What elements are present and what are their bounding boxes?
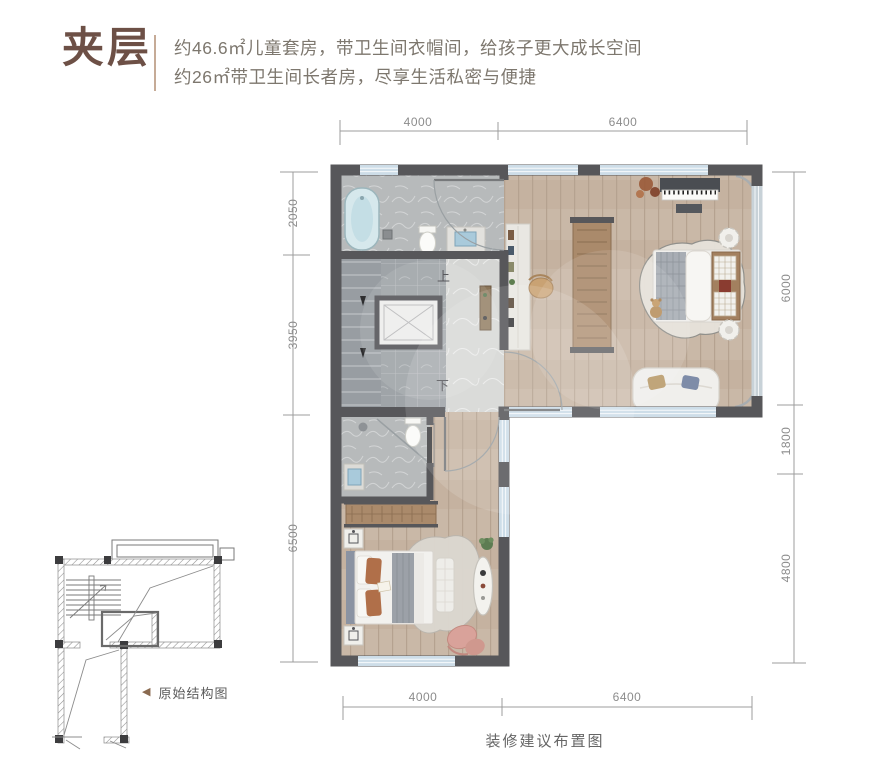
kids-bed-cushion [719,280,731,292]
window-top-3 [600,165,708,175]
dim-top-1: 4000 [404,115,433,129]
structure-stub [220,548,234,560]
dimension-bottom: 4000 6400 [343,690,752,720]
structure-stairs [66,576,121,620]
piano-bench [676,204,702,213]
structure-label-text: 原始结构图 [158,683,228,702]
nightstand-bottom [719,320,739,340]
elder-pillow-1 [365,558,382,585]
dimension-right: 6000 1800 4800 [772,172,806,663]
bed-bench [436,558,454,612]
structure-diagonals [52,566,213,749]
bathtub-basin [351,196,373,242]
window-top-1 [360,165,398,175]
dim-left-3: 6500 [286,524,300,553]
plan-caption: 装修建议布置图 [400,730,690,751]
dim-bottom-2: 6400 [613,690,642,704]
dim-right-2: 1800 [779,427,793,456]
shower-head [359,423,368,432]
dim-right-1: 6000 [779,274,793,303]
window-right-wall [752,186,763,396]
structure-columns [55,556,222,743]
elder-bed [346,551,433,624]
nightstand-top [719,228,739,248]
structure-eave-inner [117,545,213,557]
dimension-left: 2050 3950 6500 [280,172,318,662]
dim-top-2: 6400 [609,115,638,129]
toilet [419,226,436,254]
elder-nightstand-bottom [344,626,363,645]
dim-left-2: 3950 [286,321,300,350]
floorplan-page: 夹层 约46.6㎡儿童套房，带卫生间衣帽间，给孩子更大成长空间 约26㎡带卫生间… [0,0,870,781]
floorplan-drawing: 上 下 [0,0,870,781]
structure-diagram [52,540,234,749]
structure-void [102,612,158,646]
dim-right-3: 4800 [779,554,793,583]
elder-wardrobe [344,501,438,528]
elder-bed-headboard [346,551,355,624]
dimension-top: 4000 6400 [340,115,747,145]
left-triangle-icon: ◀ [142,687,151,698]
dim-bottom-1: 4000 [409,690,438,704]
structure-walls [58,559,220,743]
dim-left-1: 2050 [286,199,300,228]
elder-sink [344,464,364,490]
elder-nightstand-top [344,529,363,548]
bathtub-drain [360,196,364,200]
window-bottom [358,656,455,666]
structure-diagram-label: ◀ 原始结构图 [142,683,228,702]
elder-pillow-2 [365,589,382,616]
side-table-oval [474,557,493,615]
shower-fixture [383,230,392,239]
window-top-2 [508,165,578,175]
